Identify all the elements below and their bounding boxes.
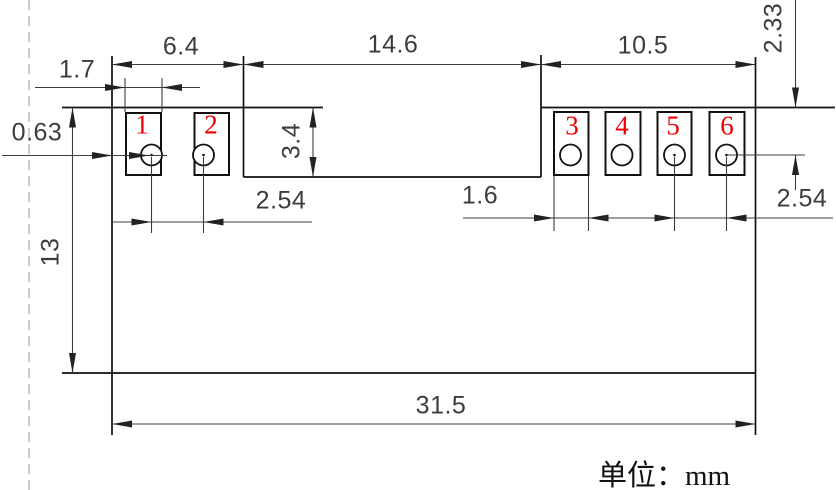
dimension-drawing: 6.4 14.6 10.5 1.7 0.63 3.4 2.54 1.6 2.54… bbox=[0, 0, 836, 490]
dim-label-pad-width-left: 1.7 bbox=[59, 58, 95, 83]
dim-label-right-group-width: 10.5 bbox=[618, 34, 669, 59]
arrow bbox=[310, 108, 317, 128]
arrow bbox=[792, 155, 799, 175]
hole-center-mark bbox=[202, 154, 205, 157]
dim-label-middle-depth: 3.4 bbox=[280, 123, 305, 159]
arrow bbox=[224, 61, 244, 68]
arrow bbox=[534, 215, 554, 222]
arrow bbox=[204, 219, 224, 226]
arrow bbox=[69, 353, 76, 373]
pin-number-1: 1 bbox=[135, 112, 149, 139]
arrow bbox=[244, 61, 264, 68]
arrow bbox=[162, 84, 182, 91]
arrow bbox=[727, 215, 747, 222]
pad-holes bbox=[141, 145, 737, 166]
hole-center-mark bbox=[673, 154, 676, 157]
pin-number-6: 6 bbox=[720, 113, 734, 140]
arrow bbox=[541, 61, 561, 68]
arrow bbox=[105, 84, 125, 91]
arrow bbox=[112, 421, 132, 428]
arrow bbox=[132, 219, 152, 226]
pad-4-hole bbox=[612, 145, 633, 166]
arrow bbox=[589, 215, 609, 222]
arrow bbox=[310, 157, 317, 177]
dim-label-body-width: 31.5 bbox=[416, 394, 467, 419]
pads bbox=[126, 112, 745, 175]
arrow bbox=[69, 108, 76, 128]
dim-label-left-group-width: 6.4 bbox=[163, 35, 199, 60]
arrow bbox=[736, 421, 756, 428]
pin-number-2: 2 bbox=[204, 112, 218, 139]
dim-label-edge-to-hole: 0.63 bbox=[12, 121, 63, 146]
dim-label-pad-width-right: 1.6 bbox=[462, 184, 498, 209]
dim-label-middle-width: 14.6 bbox=[368, 33, 419, 58]
arrow bbox=[521, 61, 541, 68]
arrow bbox=[655, 215, 675, 222]
dim-label-body-height: 13 bbox=[39, 238, 64, 267]
arrow bbox=[736, 61, 756, 68]
pad-3-hole bbox=[560, 145, 581, 166]
arrow bbox=[112, 61, 132, 68]
dim-label-pitch-right: 2.54 bbox=[777, 187, 828, 212]
dim-label-pitch-left: 2.54 bbox=[256, 189, 307, 214]
arrow bbox=[792, 88, 799, 108]
unit-note: 单位：mm bbox=[598, 452, 730, 490]
pin-number-5: 5 bbox=[666, 113, 680, 140]
pin-number-3: 3 bbox=[565, 113, 579, 140]
arrow bbox=[92, 152, 112, 159]
pin-number-4: 4 bbox=[615, 113, 629, 140]
dim-label-top-to-hole: 2.33 bbox=[762, 3, 787, 54]
